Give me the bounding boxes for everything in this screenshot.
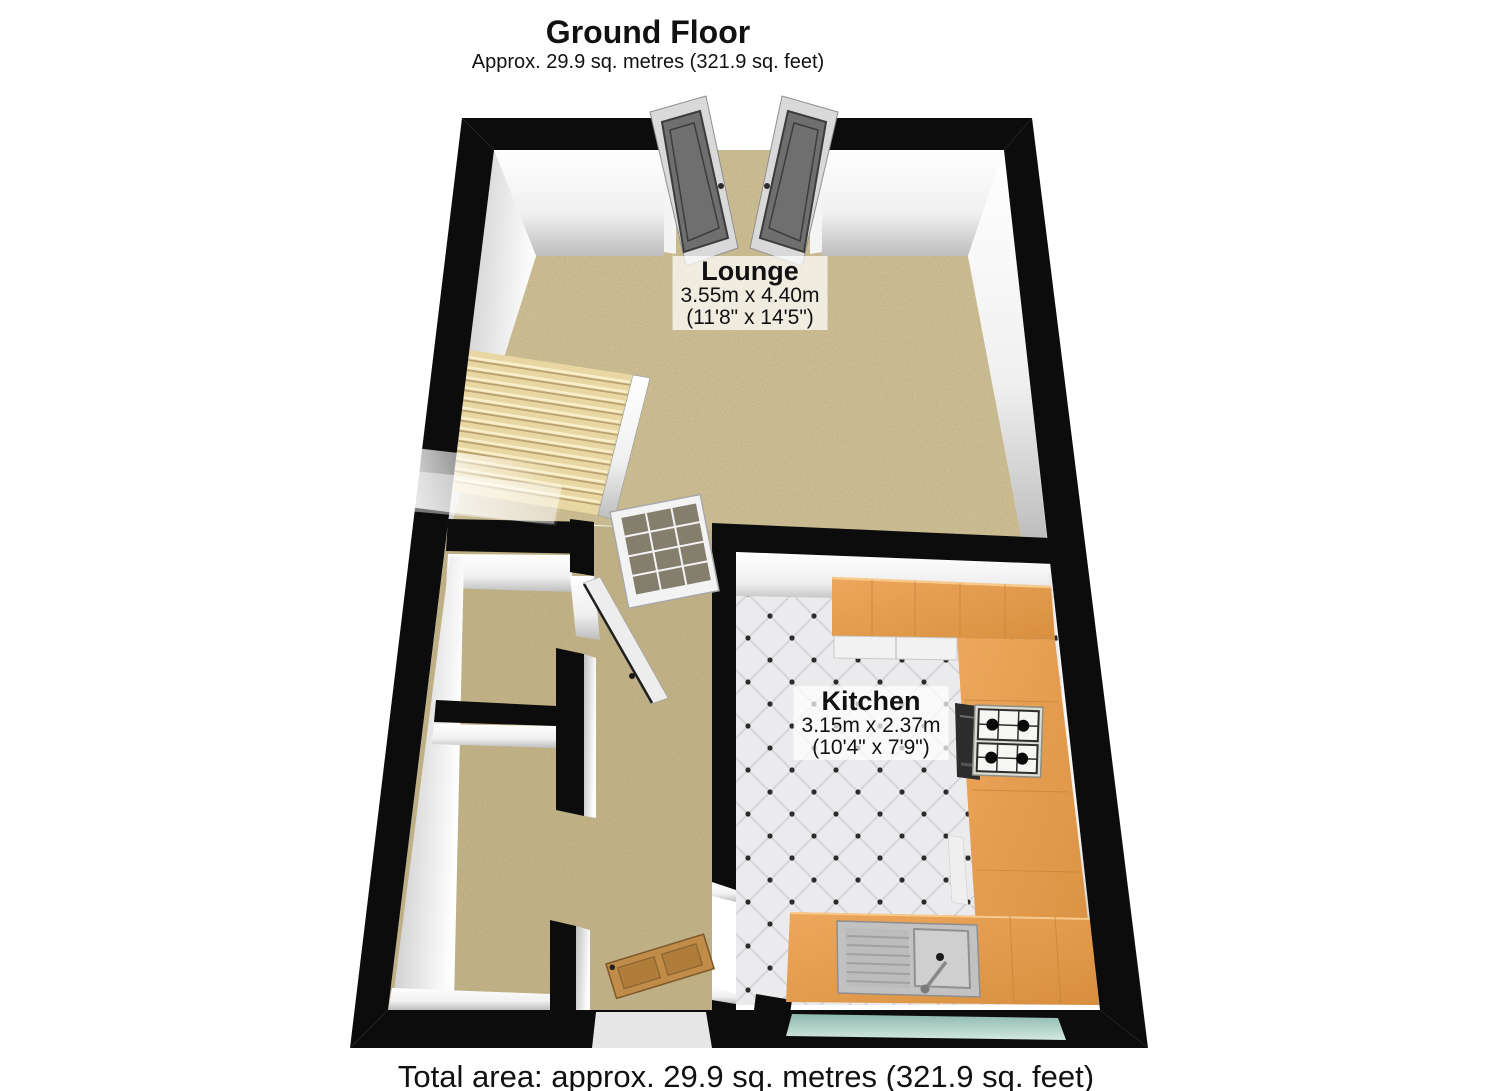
glazed-internal-door (610, 494, 719, 608)
kitchen-label: Kitchen 3.15m x 2.37m (10'4" x 7'9") (794, 686, 949, 760)
lounge-size-metric: 3.55m x 4.40m (681, 285, 820, 307)
lounge-label: Lounge 3.55m x 4.40m (11'8" x 14'5") (673, 256, 828, 330)
page-subtitle: Approx. 29.9 sq. metres (321.9 sq. feet) (472, 51, 824, 74)
floorplan-page: Ground Floor Approx. 29.9 sq. metres (32… (0, 0, 1500, 1091)
total-area-text: Total area: approx. 29.9 sq. metres (321… (398, 1059, 1094, 1091)
rear-window (786, 1014, 1066, 1040)
gas-hob (973, 705, 1043, 777)
sink (837, 921, 980, 997)
kitchen-size-imperial: (10'4" x 7'9") (802, 737, 941, 759)
floorplan-drawing (0, 0, 1500, 1091)
lounge-name: Lounge (681, 257, 820, 285)
page-title: Ground Floor (546, 14, 750, 51)
front-door-threshold (592, 1012, 712, 1048)
kitchen-size-metric: 3.15m x 2.37m (802, 715, 941, 737)
kitchen-name: Kitchen (802, 687, 941, 715)
lounge-size-imperial: (11'8" x 14'5") (681, 307, 820, 329)
